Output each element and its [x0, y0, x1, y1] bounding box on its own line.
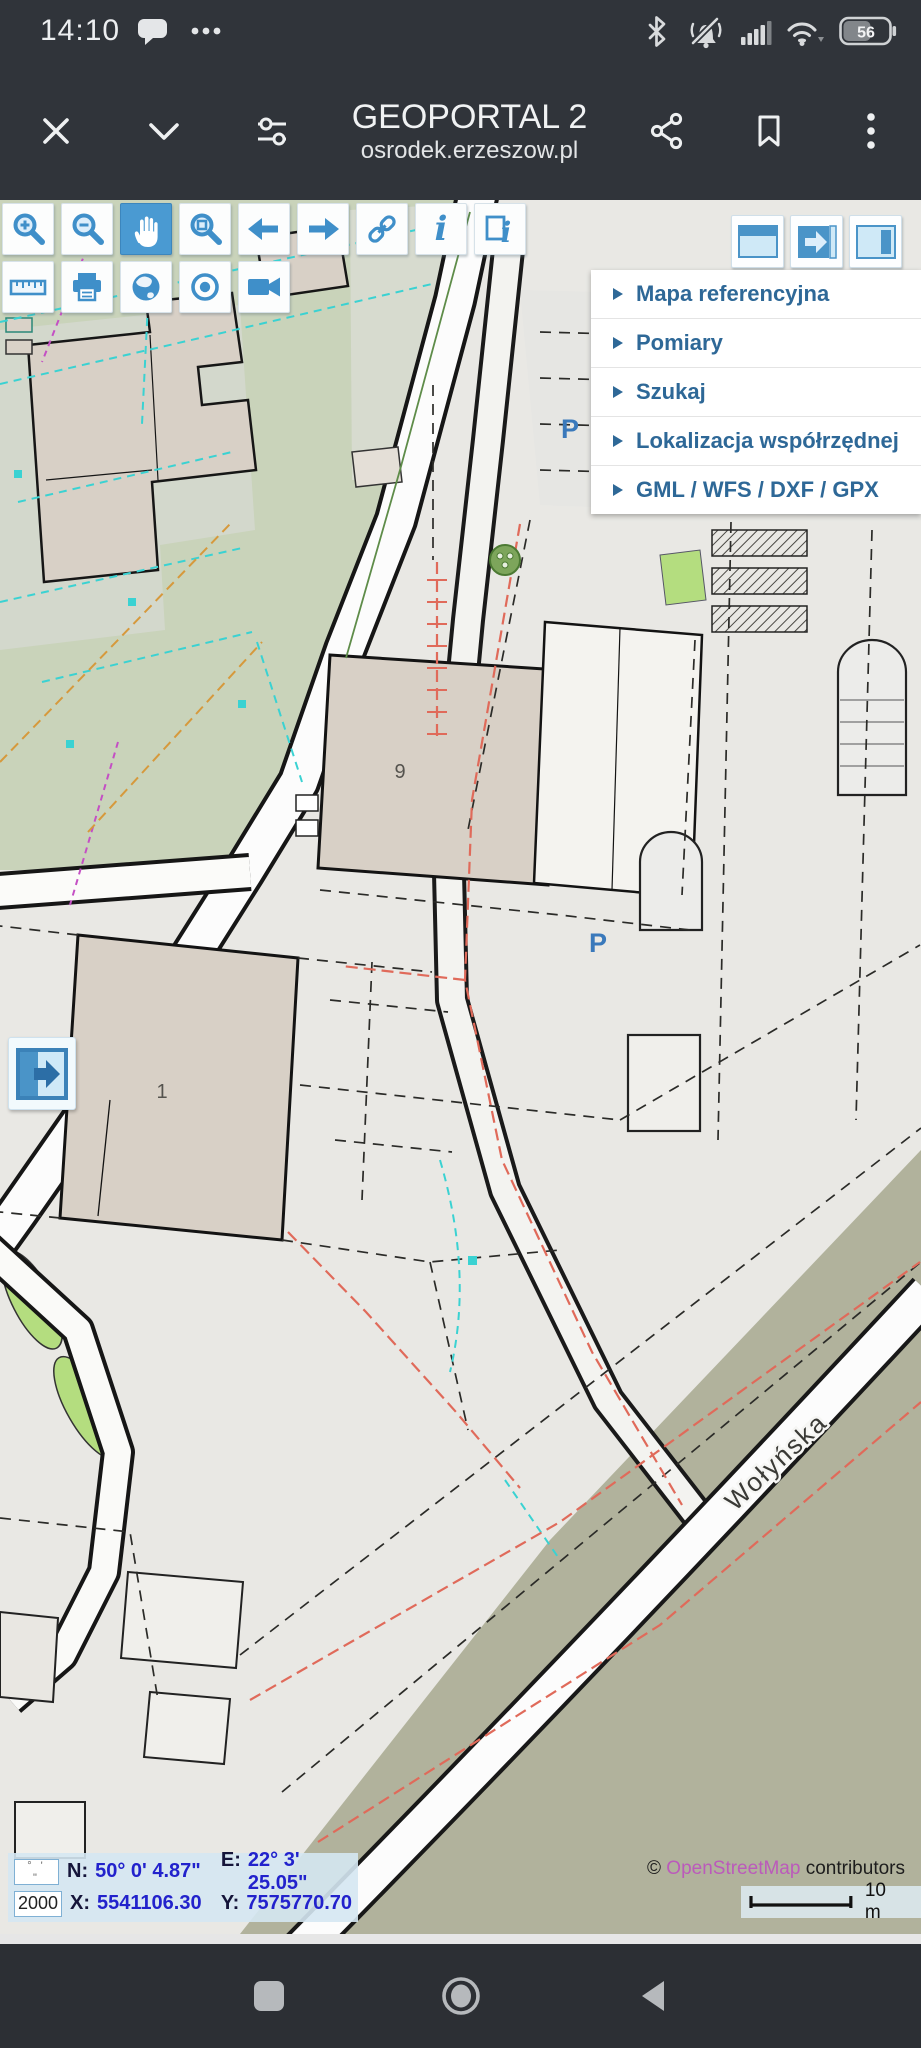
menu-item-szukaj[interactable]: Szukaj [591, 368, 921, 417]
menu-item-label: GML / WFS / DXF / GPX [636, 477, 879, 503]
scale-input[interactable]: 2000 [14, 1891, 62, 1917]
status-bar-right: 56 [639, 11, 897, 51]
expand-arrow-icon [613, 484, 623, 496]
header-left-actions [30, 100, 298, 162]
collapse-button[interactable] [138, 100, 190, 162]
target-icon [185, 267, 225, 307]
print-icon [67, 267, 107, 307]
coordinate-row-geographic: ° ' " N: 50° 0' 4.87" E: 22° 3' 25.05" [14, 1857, 352, 1886]
layout-open-right-panel-button[interactable] [790, 215, 843, 268]
header-right-actions [641, 100, 897, 162]
home-circle-icon [440, 1975, 482, 2017]
svg-text:i: i [501, 216, 512, 249]
menu-item-label: Mapa referencyjna [636, 281, 829, 307]
coordinate-bar: ° ' " N: 50° 0' 4.87" E: 22° 3' 25.05" 2… [8, 1853, 358, 1922]
wifi-icon [785, 11, 827, 51]
expand-arrow-icon [613, 337, 623, 349]
link-icon [362, 209, 402, 249]
map-viewport: 9 1 P P Wołyńska [0, 200, 921, 1934]
map-toolbar: i i [2, 203, 533, 319]
panel-layout-buttons [731, 215, 902, 268]
map-symbols-layer [490, 545, 520, 575]
feature-info-button[interactable]: i [474, 203, 526, 255]
layout-top-panel-button[interactable] [731, 215, 784, 268]
bookmark-button[interactable] [743, 100, 795, 162]
expand-arrow-icon [613, 386, 623, 398]
measure-button[interactable] [2, 261, 54, 313]
scale-bar-line [749, 1894, 853, 1910]
x-label: X: [70, 1892, 90, 1915]
attribution-suffix: contributors [806, 1858, 905, 1879]
zoom-in-icon [8, 209, 48, 249]
dms-format-button[interactable]: ° ' " [14, 1859, 59, 1885]
y-readout: Y: 7575770.70 [221, 1892, 352, 1915]
coordinate-row-projected: 2000 X: 5541106.30 Y: 7575770.70 [14, 1889, 352, 1918]
info-button[interactable]: i [415, 203, 467, 255]
top-panel-icon [738, 225, 778, 259]
back-triangle-icon [636, 1977, 670, 2015]
copyright-symbol: © [647, 1858, 661, 1879]
menu-item-lokalizacja-wspolrzednej[interactable]: Lokalizacja współrzędnej [591, 417, 921, 466]
parking-label-mid: P [589, 928, 607, 958]
y-label: Y: [221, 1892, 240, 1915]
longitude-label: E: [221, 1849, 241, 1872]
share-button[interactable] [641, 100, 693, 162]
right-panel-icon [856, 225, 896, 259]
previous-view-button[interactable] [238, 203, 290, 255]
tune-icon [253, 112, 291, 150]
mute-bell-icon [685, 11, 727, 51]
expand-arrow-icon [613, 435, 623, 447]
overflow-menu-button[interactable] [845, 100, 897, 162]
bluetooth-icon [639, 11, 673, 51]
open-right-panel-icon [797, 225, 837, 259]
more-notifications-icon [190, 13, 224, 49]
street-view-button[interactable] [238, 261, 290, 313]
tools-menu-panel: Mapa referencyjna Pomiary Szukaj Lokaliz… [591, 270, 921, 514]
bookmark-icon [751, 111, 787, 151]
pan-hand-icon [125, 208, 167, 250]
link-button[interactable] [356, 203, 408, 255]
feature-info-icon: i [480, 209, 520, 249]
status-bar-left: 14:10 [40, 13, 224, 49]
page-bottom-strip [0, 1934, 921, 1944]
battery-percent: 56 [857, 25, 875, 42]
app-header: GEOPORTAL 2 osrodek.erzeszow.pl [0, 62, 921, 200]
home-button[interactable] [426, 1966, 496, 2026]
globe-icon [126, 267, 166, 307]
battery-icon: 56 [839, 14, 897, 48]
zoom-box-button[interactable] [179, 203, 231, 255]
print-button[interactable] [61, 261, 113, 313]
kebab-menu-icon [864, 109, 878, 153]
svg-text:i: i [435, 209, 448, 249]
menu-item-label: Lokalizacja współrzędnej [636, 428, 899, 454]
osm-link[interactable]: OpenStreetMap [666, 1858, 800, 1879]
recents-square-icon [251, 1978, 287, 2014]
menu-item-label: Szukaj [636, 379, 706, 405]
arrow-left-icon [244, 209, 284, 249]
open-panel-icon [16, 1048, 68, 1100]
full-extent-button[interactable] [120, 261, 172, 313]
building-label-9: 9 [394, 761, 405, 783]
zoom-out-button[interactable] [61, 203, 113, 255]
close-button[interactable] [30, 100, 82, 162]
longitude-value: 22° 3' 25.05" [248, 1849, 352, 1895]
latitude-readout: N: 50° 0' 4.87" [67, 1860, 213, 1883]
menu-item-gml-wfs-dxf-gpx[interactable]: GML / WFS / DXF / GPX [591, 466, 921, 514]
video-camera-icon [244, 267, 284, 307]
pan-button[interactable] [120, 203, 172, 255]
chat-notification-icon [136, 13, 174, 49]
close-icon [38, 113, 74, 149]
scale-bar-label: 10 m [865, 1880, 907, 1924]
arrow-right-icon [303, 209, 343, 249]
building-label-1: 1 [156, 1081, 167, 1103]
toolbar-row-1: i i [2, 203, 533, 255]
info-icon: i [421, 209, 461, 249]
scale-bar: 10 m [741, 1886, 921, 1918]
center-map-button[interactable] [179, 261, 231, 313]
share-icon [648, 111, 686, 151]
status-bar: 14:10 [0, 0, 921, 62]
phone-screen: 14:10 [0, 0, 921, 2048]
ruler-icon [8, 267, 48, 307]
latitude-value: 50° 0' 4.87" [95, 1860, 201, 1883]
layout-right-panel-button[interactable] [849, 215, 902, 268]
y-value: 7575770.70 [246, 1892, 352, 1915]
x-value: 5541106.30 [97, 1892, 202, 1915]
chevron-down-icon [144, 113, 184, 149]
menu-item-label: Pomiary [636, 330, 723, 356]
menu-item-pomiary[interactable]: Pomiary [591, 319, 921, 368]
expand-arrow-icon [613, 288, 623, 300]
map-attribution: © OpenStreetMap contributors [647, 1858, 905, 1880]
clock: 14:10 [40, 14, 120, 48]
display-options-button[interactable] [246, 100, 298, 162]
longitude-readout: E: 22° 3' 25.05" [221, 1849, 352, 1895]
open-side-panel-button[interactable] [8, 1037, 76, 1110]
page-title-block: GEOPORTAL 2 osrodek.erzeszow.pl [298, 98, 641, 165]
site-url: osrodek.erzeszow.pl [298, 137, 641, 165]
menu-item-mapa-referencyjna[interactable]: Mapa referencyjna [591, 270, 921, 319]
latitude-label: N: [67, 1860, 88, 1883]
x-readout: X: 5541106.30 [70, 1892, 213, 1915]
parking-label-top: P [561, 414, 579, 444]
android-nav-bar [0, 1944, 921, 2048]
back-button[interactable] [618, 1966, 688, 2026]
zoom-in-button[interactable] [2, 203, 54, 255]
signal-strength-icon [739, 11, 773, 51]
zoom-box-icon [185, 209, 225, 249]
zoom-out-icon [67, 209, 107, 249]
toolbar-row-2 [2, 261, 533, 313]
recents-button[interactable] [234, 1966, 304, 2026]
app-title: GEOPORTAL 2 [298, 98, 641, 137]
next-view-button[interactable] [297, 203, 349, 255]
